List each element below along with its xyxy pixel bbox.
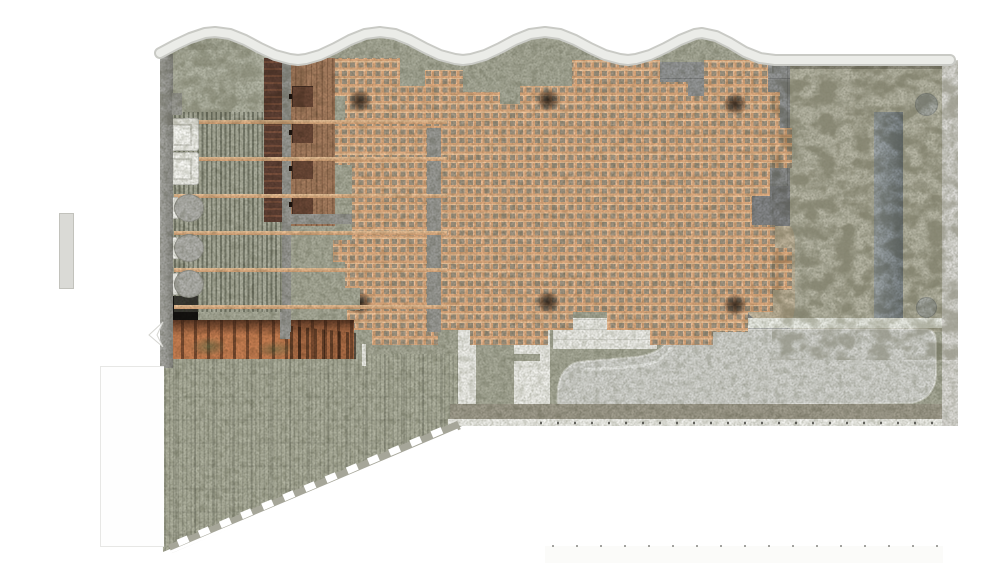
wood-deck	[291, 58, 335, 226]
exterior-landing	[100, 366, 164, 547]
toilet-bowl	[174, 194, 204, 222]
left-wall	[156, 54, 173, 368]
floor-plan-canvas: Top-down architectural floor plan render…	[0, 0, 1000, 563]
column-smudge	[718, 88, 752, 120]
toilet-bowl	[174, 270, 204, 298]
right-wall	[942, 56, 962, 426]
left-wall-nib	[172, 93, 182, 115]
deck-stool	[292, 158, 313, 179]
deck-stool	[292, 122, 313, 143]
lower-level-ghost-strip	[545, 546, 943, 563]
overhead-beam	[174, 157, 447, 161]
bottom-wall-edge	[448, 419, 958, 426]
overhead-beam	[174, 120, 447, 124]
deck-end-wall	[286, 214, 352, 224]
deck-stool	[292, 86, 313, 107]
round-column	[916, 297, 937, 318]
column-smudge	[718, 289, 752, 321]
toilet-bowl	[174, 234, 204, 262]
round-column	[915, 93, 938, 116]
small-partition-post	[362, 344, 366, 366]
column-smudge	[343, 85, 377, 117]
overhead-beam	[174, 305, 447, 309]
counter-bar	[874, 112, 903, 318]
column-smudge	[531, 84, 565, 116]
overhead-beam	[174, 194, 447, 198]
overhead-beam	[174, 231, 447, 235]
column-smudge	[531, 286, 565, 318]
detached-wall-segment	[59, 213, 74, 289]
overhead-beam	[174, 268, 447, 272]
